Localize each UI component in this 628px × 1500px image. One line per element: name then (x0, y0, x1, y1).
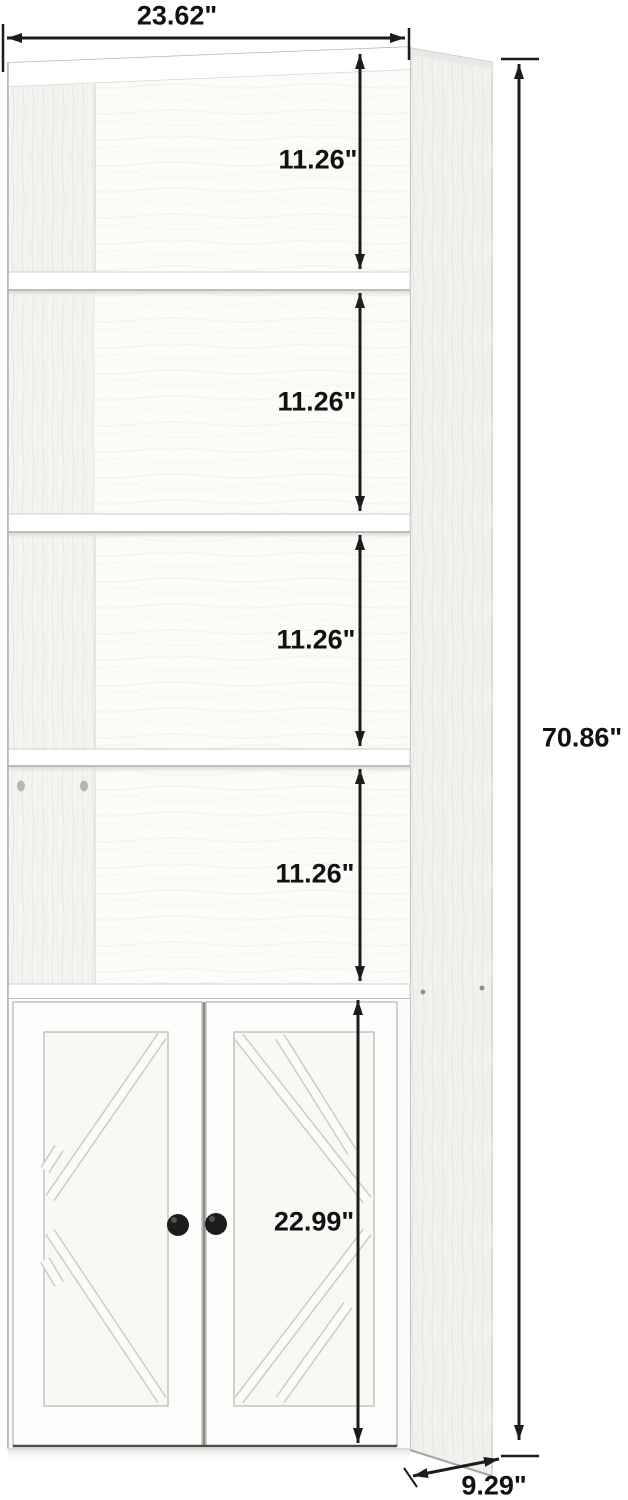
shelf-board-3 (8, 749, 410, 772)
right-door-knob (205, 1213, 227, 1235)
bookcase-front (8, 47, 410, 1458)
dimension-diagram: 23.62" 11.26" 11.26" 11.26" 11.26" 22.99… (0, 0, 628, 1500)
shelf2-height-label: 11.26" (278, 387, 357, 418)
cam-hole (421, 990, 426, 995)
shelf-board-1 (8, 272, 410, 296)
cam-hole (480, 986, 485, 991)
right-side-panel (410, 48, 492, 1476)
furniture-drawing (0, 0, 628, 1500)
shelf4-height-label: 11.26" (276, 859, 355, 890)
width-label: 23.62" (137, 1, 217, 32)
shelf3-height-label: 11.26" (277, 625, 356, 656)
left-door-knob (167, 1214, 189, 1236)
cam-hole (17, 781, 25, 792)
cabinet-top-board (8, 984, 410, 999)
floor-shadow (8, 1448, 410, 1458)
shelf1-height-label: 11.26" (279, 145, 358, 176)
overall-height-label: 70.86" (542, 723, 622, 754)
left-door-panel (44, 1032, 168, 1406)
depth-label: 9.29" (461, 1471, 526, 1500)
shelf-board-2 (8, 514, 410, 538)
cabinet-height-label: 22.99" (274, 1207, 354, 1238)
cam-hole (80, 781, 88, 792)
